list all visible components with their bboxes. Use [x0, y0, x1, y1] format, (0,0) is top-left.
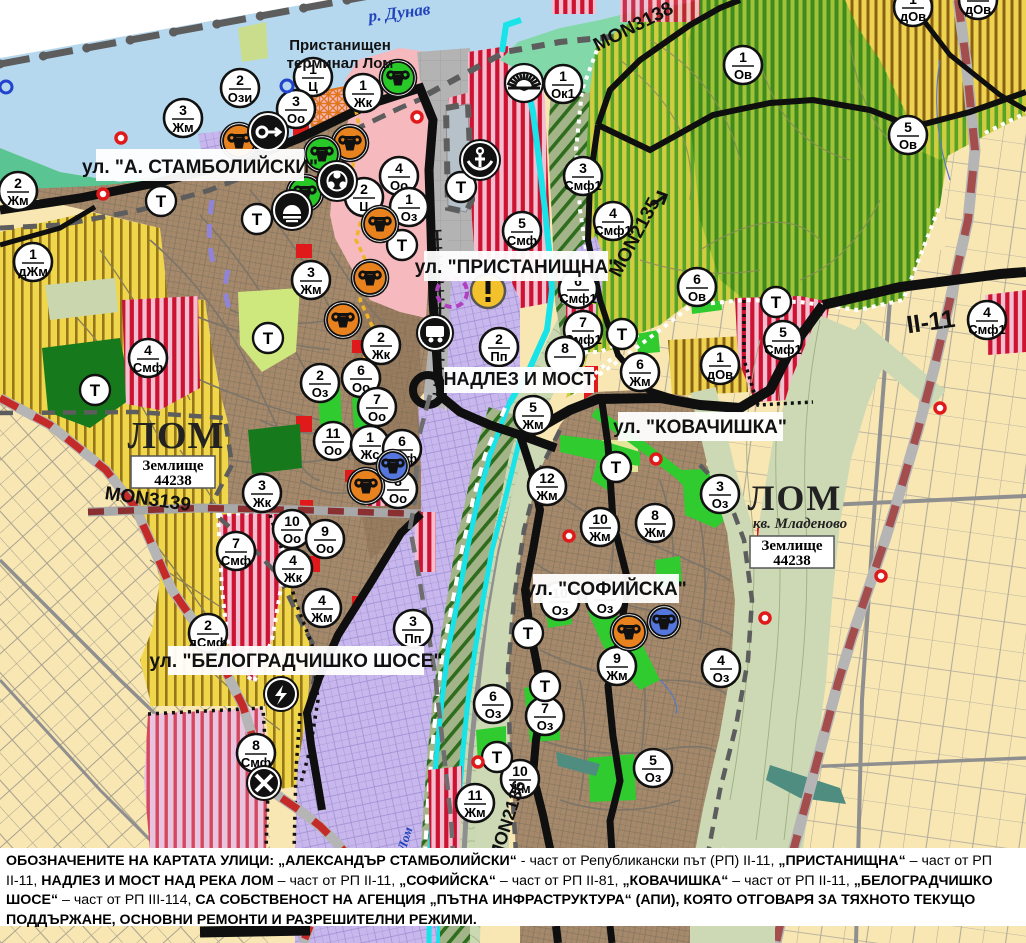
svg-text:кв. Младеново: кв. Младеново [753, 516, 847, 532]
svg-text:5: 5 [779, 324, 787, 340]
svg-text:Оо: Оо [324, 443, 342, 458]
svg-text:11: 11 [468, 787, 483, 803]
svg-text:НАДЛЕЗ И МОСТ: НАДЛЕЗ И МОСТ [444, 369, 595, 389]
svg-text:7: 7 [373, 391, 381, 407]
svg-text:Жм: Жм [605, 668, 627, 683]
svg-text:Ок1: Ок1 [551, 86, 575, 101]
svg-text:5: 5 [904, 119, 912, 135]
svg-text:Оо: Оо [287, 111, 305, 126]
svg-text:3: 3 [292, 93, 300, 109]
svg-text:1: 1 [359, 77, 367, 93]
svg-text:5: 5 [649, 752, 657, 768]
svg-text:1: 1 [559, 68, 567, 84]
svg-text:Жк: Жк [371, 347, 391, 362]
svg-text:Т: Т [90, 381, 101, 400]
svg-text:3: 3 [579, 160, 587, 176]
svg-text:8: 8 [561, 340, 569, 356]
svg-text:Смф1: Смф1 [968, 322, 1005, 337]
svg-text:2: 2 [14, 175, 22, 191]
svg-text:Ози: Ози [228, 90, 253, 105]
svg-text:Т: Т [252, 210, 263, 229]
svg-text:Землище: Землище [761, 538, 823, 554]
svg-text:Жм: Жм [310, 610, 332, 625]
svg-text:Смф: Смф [133, 360, 163, 375]
svg-text:Ц: Ц [308, 79, 318, 94]
svg-text:Жс: Жс [360, 447, 380, 462]
svg-text:Смф: Смф [507, 233, 537, 248]
svg-text:3: 3 [409, 613, 417, 629]
svg-text:10: 10 [284, 513, 300, 529]
svg-text:2: 2 [360, 181, 368, 197]
svg-text:3: 3 [258, 477, 266, 493]
svg-text:44238: 44238 [773, 553, 811, 569]
svg-text:1: 1 [716, 349, 724, 365]
svg-text:10: 10 [512, 763, 528, 779]
svg-text:Оо: Оо [368, 409, 386, 424]
svg-text:3: 3 [179, 102, 187, 118]
svg-text:Т: Т [456, 178, 467, 197]
svg-text:Жм: Жм [299, 282, 321, 297]
svg-text:дОв: дОв [965, 2, 991, 17]
svg-text:Оо: Оо [389, 491, 407, 506]
svg-text:6: 6 [636, 356, 644, 372]
svg-text:ул. "СОФИЙСКА": ул. "СОФИЙСКА" [525, 578, 687, 600]
svg-text:7: 7 [579, 314, 587, 330]
svg-text:1: 1 [29, 246, 37, 262]
svg-text:Т: Т [617, 325, 628, 344]
svg-text:Оз: Оз [312, 385, 329, 400]
svg-text:Ов: Ов [734, 67, 752, 82]
svg-text:8: 8 [252, 737, 260, 753]
svg-text:1: 1 [366, 429, 374, 445]
svg-text:Жк: Жк [353, 95, 373, 110]
svg-text:терминал Лом: терминал Лом [287, 55, 394, 72]
svg-text:Жм: Жм [171, 120, 193, 135]
svg-text:Т: Т [611, 458, 622, 477]
svg-text:Смф1: Смф1 [564, 178, 601, 193]
svg-text:9: 9 [613, 650, 621, 666]
svg-text:6: 6 [489, 688, 497, 704]
svg-text:Оз: Оз [713, 670, 730, 685]
svg-text:Оз: Оз [645, 770, 662, 785]
svg-text:Пп: Пп [404, 631, 421, 646]
svg-text:Пп: Пп [490, 349, 507, 364]
svg-text:Жм: Жм [588, 529, 610, 544]
svg-text:7: 7 [232, 535, 240, 551]
svg-text:ул. "А. СТАМБОЛИЙСКИ": ул. "А. СТАМБОЛИЙСКИ" [82, 156, 318, 178]
svg-text:7: 7 [541, 700, 549, 716]
svg-text:3: 3 [716, 478, 724, 494]
svg-text:2: 2 [204, 617, 212, 633]
svg-text:Ов: Ов [899, 137, 917, 152]
svg-text:Жм: Жм [628, 374, 650, 389]
svg-text:Т: Т [156, 192, 167, 211]
svg-text:3: 3 [307, 264, 315, 280]
svg-text:Смф: Смф [221, 553, 251, 568]
svg-text:Т: Т [523, 624, 534, 643]
svg-text:Жк: Жк [252, 495, 272, 510]
svg-text:Т: Т [771, 293, 782, 312]
svg-text:ЛОМ: ЛОМ [128, 415, 225, 457]
svg-text:44238: 44238 [154, 473, 192, 489]
svg-text:4: 4 [144, 342, 152, 358]
svg-text:Землище: Землище [142, 458, 204, 474]
svg-text:дОв: дОв [900, 9, 926, 24]
svg-text:ул. "КОВАЧИШКА": ул. "КОВАЧИШКА" [613, 417, 787, 438]
svg-text:4: 4 [717, 652, 725, 668]
svg-text:Оз: Оз [552, 603, 569, 618]
svg-text:2: 2 [377, 329, 385, 345]
svg-text:Оз: Оз [712, 496, 729, 511]
svg-text:4: 4 [609, 205, 617, 221]
svg-text:6: 6 [398, 433, 406, 449]
svg-text:Оз: Оз [401, 209, 418, 224]
svg-text:Т: Т [492, 748, 503, 767]
svg-text:5: 5 [529, 399, 537, 415]
svg-text:Т: Т [540, 677, 551, 696]
svg-text:ул. "ПРИСТАНИЩНА": ул. "ПРИСТАНИЩНА" [415, 257, 618, 278]
svg-text:2: 2 [495, 331, 503, 347]
svg-text:дОв: дОв [707, 367, 733, 382]
svg-text:4: 4 [318, 592, 326, 608]
svg-text:Жк: Жк [283, 570, 303, 585]
svg-text:ЛОМ: ЛОМ [748, 478, 843, 518]
svg-text:1: 1 [909, 0, 917, 7]
svg-text:8: 8 [651, 507, 659, 523]
svg-text:10: 10 [592, 511, 608, 527]
svg-text:Т: Т [397, 236, 408, 255]
svg-text:11: 11 [326, 425, 341, 441]
svg-text:Жм: Жм [521, 417, 543, 432]
svg-text:Т: Т [263, 329, 274, 348]
svg-text:Оо: Оо [283, 531, 301, 546]
svg-text:Смф1: Смф1 [764, 342, 801, 357]
svg-text:2: 2 [236, 72, 244, 88]
svg-text:5: 5 [518, 215, 526, 231]
svg-text:Смф1: Смф1 [559, 291, 596, 306]
svg-text:9: 9 [321, 523, 329, 539]
svg-text:Жм: Жм [6, 193, 28, 208]
svg-text:2: 2 [316, 367, 324, 383]
svg-text:Ов: Ов [688, 289, 706, 304]
svg-text:6: 6 [693, 271, 701, 287]
svg-text:6: 6 [357, 362, 365, 378]
svg-text:Пристанищен: Пристанищен [289, 37, 391, 54]
svg-text:4: 4 [395, 160, 403, 176]
svg-text:Оз: Оз [597, 601, 614, 616]
svg-text:дЖм: дЖм [18, 264, 48, 279]
svg-text:1: 1 [739, 49, 747, 65]
svg-text:Жм: Жм [535, 488, 557, 503]
svg-text:Жм: Жм [643, 525, 665, 540]
svg-text:Оо: Оо [316, 541, 334, 556]
svg-text:1: 1 [405, 191, 413, 207]
svg-text:4: 4 [983, 304, 991, 320]
svg-text:12: 12 [539, 470, 555, 486]
svg-text:Оз: Оз [485, 706, 502, 721]
svg-text:4: 4 [289, 552, 297, 568]
svg-text:Оз: Оз [537, 718, 554, 733]
svg-text:ул. "БЕЛОГРАДЧИШКО ШОСЕ": ул. "БЕЛОГРАДЧИШКО ШОСЕ" [150, 651, 443, 672]
svg-text:Жм: Жм [463, 805, 485, 820]
